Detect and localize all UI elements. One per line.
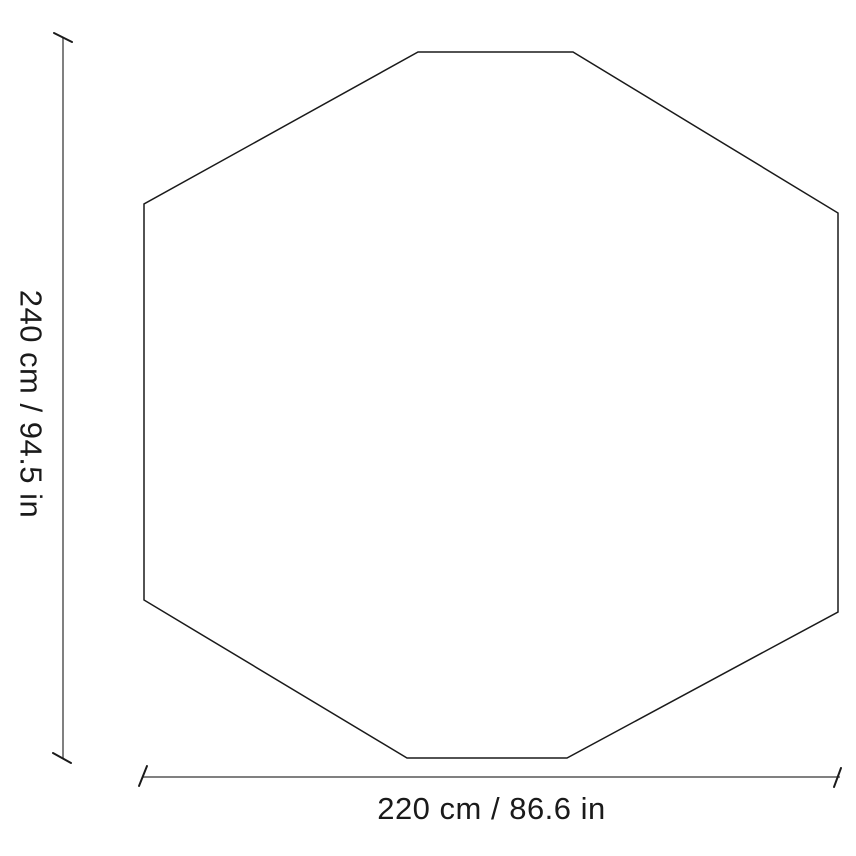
octagon-outline [144,52,838,758]
width-dimension-label: 220 cm / 86.6 in [143,793,840,824]
diagram-svg [0,0,856,856]
height-dimension-label: 240 cm / 94.5 in [16,290,47,519]
dimension-diagram: 240 cm / 94.5 in 220 cm / 86.6 in [0,0,856,856]
